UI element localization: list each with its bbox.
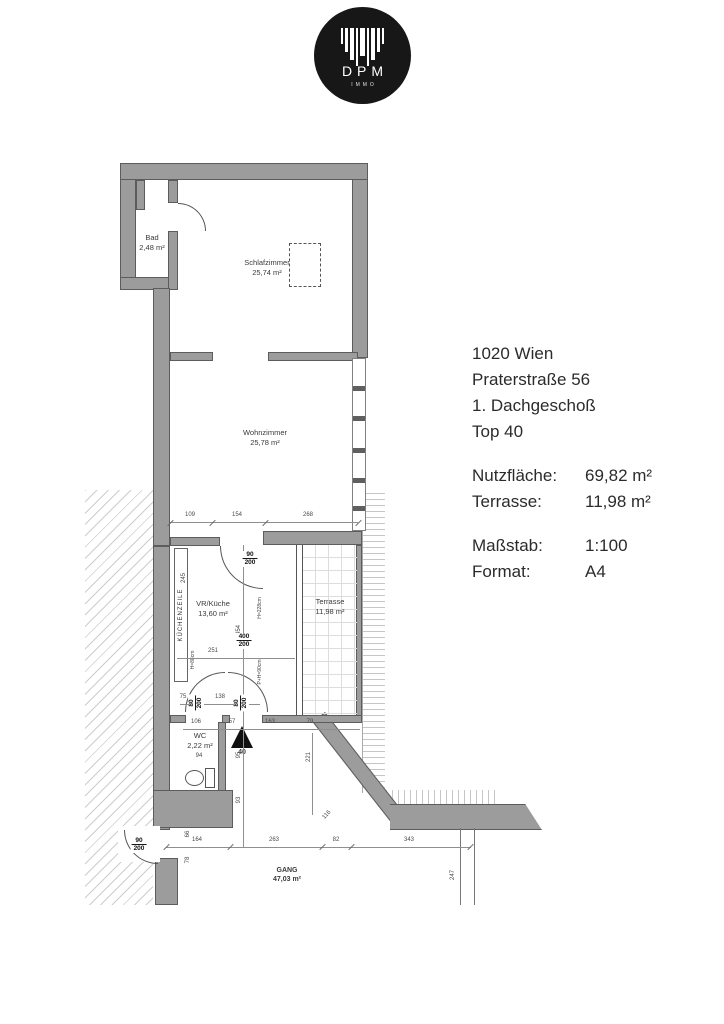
logo-sub-text: IMMO bbox=[314, 82, 411, 88]
dimension-label: 163 bbox=[265, 719, 275, 725]
room-label-gang: GANG47,03 m² bbox=[273, 866, 301, 884]
dimension-tick bbox=[262, 520, 268, 526]
dimension-label: 221 bbox=[306, 752, 312, 762]
dpm-immo-logo: DPM IMMO bbox=[314, 7, 411, 104]
dimension-line bbox=[166, 847, 471, 848]
address-line: Praterstraße 56 bbox=[472, 367, 712, 393]
wall bbox=[155, 858, 178, 905]
dimension-label: 78 bbox=[185, 857, 191, 864]
area-label: Terrasse: bbox=[472, 492, 542, 511]
wall bbox=[390, 804, 542, 830]
room-label-wc: WC2,22 m² bbox=[187, 731, 212, 751]
door-size-label: 400200 bbox=[236, 633, 253, 649]
wall bbox=[170, 537, 220, 546]
dimension-label: 138 bbox=[215, 694, 225, 700]
window-mullion bbox=[353, 416, 365, 421]
toilet-icon bbox=[185, 770, 204, 786]
wall bbox=[268, 352, 358, 361]
room-label-schlafzimmer: Schlafzimmer25,74 m² bbox=[244, 258, 289, 278]
glass-wall-annotation: H=228cm bbox=[257, 597, 263, 619]
dimension-label: 79 bbox=[307, 719, 314, 725]
dimension-label: 106 bbox=[191, 719, 201, 725]
area-value: 11,98 m² bbox=[585, 489, 651, 515]
dimension-label: 94 bbox=[196, 753, 203, 759]
area-row: Terrasse: 11,98 m² bbox=[472, 489, 712, 515]
floorplan-page: DPM IMMO 1020 Wien Praterstraße 56 1. Da… bbox=[0, 0, 724, 1024]
door-size-label: 80200 bbox=[188, 695, 204, 712]
dimension-label: 109 bbox=[185, 512, 195, 518]
room-label-terrasse: Terrasse11,98 m² bbox=[315, 597, 344, 617]
meta-value: A4 bbox=[585, 559, 606, 585]
area-row: Nutzfläche: 69,82 m² bbox=[472, 463, 712, 489]
window-mullion bbox=[353, 506, 365, 511]
hatch-strip-bottom bbox=[380, 790, 500, 806]
door-size-label: 80200 bbox=[233, 695, 249, 712]
wall-line bbox=[460, 828, 461, 905]
dimension-label: 154 bbox=[232, 512, 242, 518]
dimension-label: 247 bbox=[450, 870, 456, 880]
meta-row: Maßstab: 1:100 bbox=[472, 533, 712, 559]
dimension-label: 57 bbox=[229, 719, 236, 725]
window-mullion bbox=[353, 478, 365, 483]
dimension-label: 343 bbox=[404, 837, 414, 843]
area-value: 69,82 m² bbox=[585, 463, 652, 489]
wall bbox=[153, 790, 233, 828]
dimension-label: 75 bbox=[180, 694, 187, 700]
meta-value: 1:100 bbox=[585, 533, 628, 559]
dimension-label: 245 bbox=[181, 573, 187, 583]
wall bbox=[168, 180, 178, 203]
address-line: Top 40 bbox=[472, 419, 712, 445]
dimension-line bbox=[183, 729, 360, 730]
wall bbox=[263, 531, 362, 545]
wall bbox=[120, 163, 368, 180]
window-mullion bbox=[353, 386, 365, 391]
dimension-label: 82 bbox=[333, 837, 340, 843]
room-label-bad: Bad2,48 m² bbox=[139, 233, 164, 253]
kitchen-counter-label: KÜCHENZEILE bbox=[178, 588, 184, 641]
meta-row: Format: A4 bbox=[472, 559, 712, 585]
wall-line bbox=[474, 828, 475, 905]
wall bbox=[170, 715, 186, 723]
room-label-kueche: VR/Küche13,60 m² bbox=[196, 599, 230, 619]
property-info: 1020 Wien Praterstraße 56 1. Dachgeschoß… bbox=[472, 341, 712, 585]
terrace-tiles bbox=[303, 545, 357, 715]
wall bbox=[218, 722, 226, 792]
hatch-strip-right bbox=[362, 493, 385, 793]
address-line: 1020 Wien bbox=[472, 341, 712, 367]
dimension-tick bbox=[209, 520, 215, 526]
skylight-dashed-rect bbox=[289, 243, 321, 287]
dimension-line bbox=[177, 658, 295, 659]
logo-bars-icon bbox=[314, 28, 411, 66]
meta-label: Maßstab: bbox=[472, 536, 543, 555]
wall bbox=[120, 179, 136, 290]
dimension-label: 251 bbox=[208, 648, 218, 654]
glass-wall bbox=[296, 545, 303, 715]
wall bbox=[352, 179, 368, 358]
glass-wall-annotation: P+H=90cm bbox=[257, 659, 263, 684]
dimension-label: 116 bbox=[322, 809, 333, 820]
dimension-label: 268 bbox=[303, 512, 313, 518]
kitchen-counter-height-label: H=88cm bbox=[190, 651, 196, 670]
logo-brand-text: DPM bbox=[314, 63, 411, 79]
toilet-icon bbox=[205, 768, 215, 788]
door-arc bbox=[178, 203, 206, 231]
window-mullion bbox=[353, 448, 365, 453]
dimension-label: 93 bbox=[236, 797, 242, 804]
meta-label: Format: bbox=[472, 562, 531, 581]
dimension-tick bbox=[467, 844, 473, 850]
room-label-wohnzimmer: Wohnzimmer25,78 m² bbox=[243, 428, 287, 448]
dimension-line bbox=[312, 733, 313, 815]
door-size-label: 90200 bbox=[242, 551, 259, 567]
dimension-label: 95 bbox=[236, 752, 242, 759]
dimension-label: 164 bbox=[192, 837, 202, 843]
dimension-label: 66 bbox=[185, 831, 191, 838]
address-line: 1. Dachgeschoß bbox=[472, 393, 712, 419]
wall bbox=[168, 231, 178, 290]
wall bbox=[170, 352, 213, 361]
wall bbox=[136, 180, 145, 210]
dimension-label: 263 bbox=[269, 837, 279, 843]
wall bbox=[153, 546, 170, 830]
door-size-label: 90200 bbox=[131, 837, 148, 853]
wall bbox=[153, 288, 170, 546]
window-band bbox=[352, 358, 366, 531]
area-label: Nutzfläche: bbox=[472, 466, 557, 485]
